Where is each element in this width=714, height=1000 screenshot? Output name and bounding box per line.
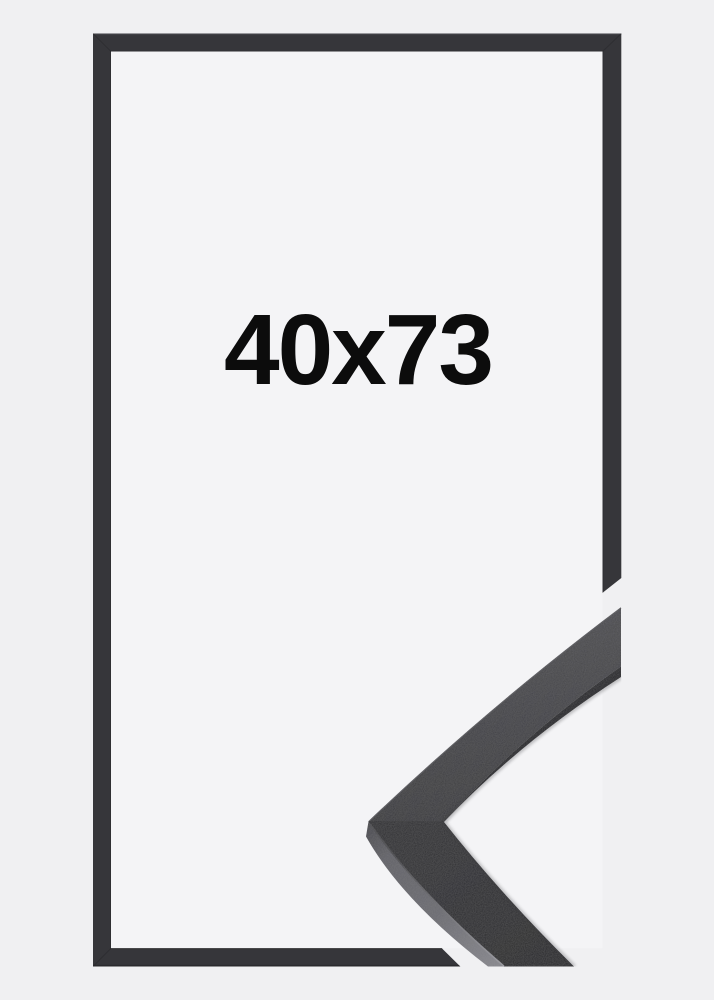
- svg-text:40x73: 40x73: [224, 294, 492, 406]
